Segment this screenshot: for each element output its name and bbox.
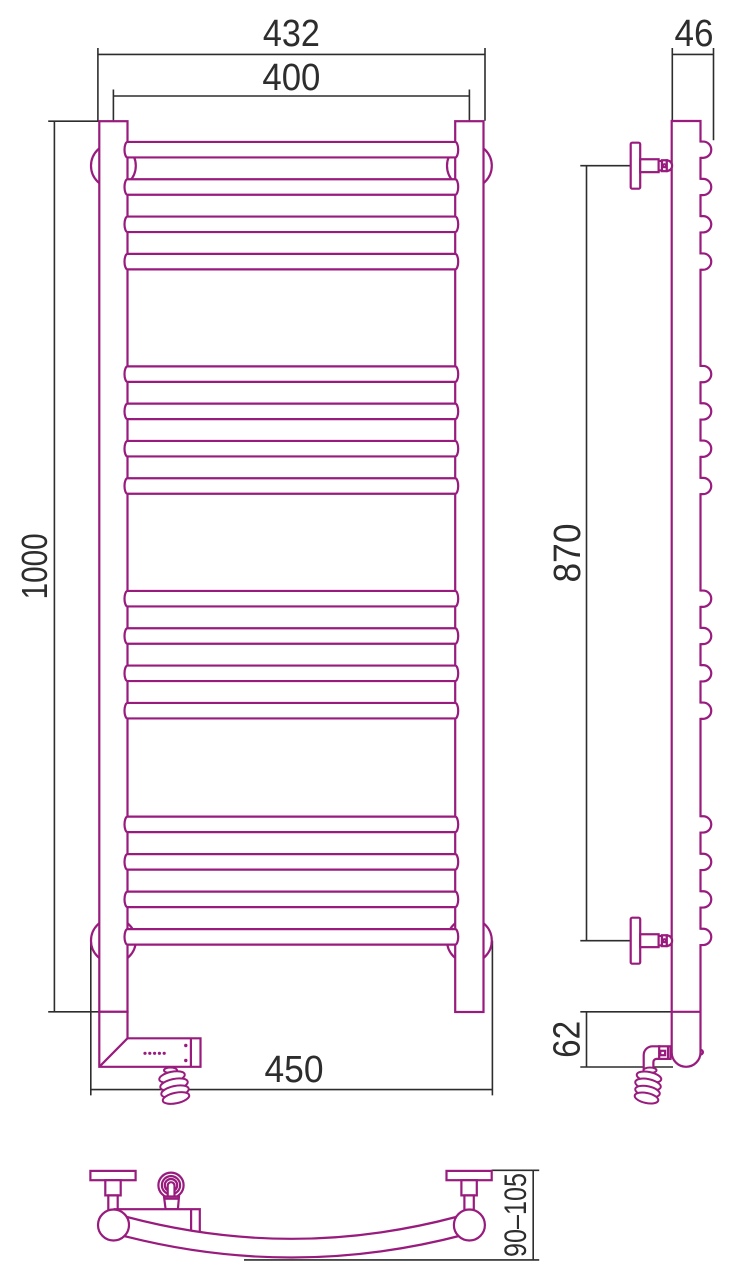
svg-text:870: 870 [547,524,589,583]
svg-text:400: 400 [262,57,320,99]
svg-text:432: 432 [263,13,320,55]
svg-text:46: 46 [675,13,714,55]
svg-text:62: 62 [547,1021,589,1058]
svg-text:450: 450 [265,1049,324,1091]
svg-text:90–105: 90–105 [497,1173,533,1257]
svg-text:1000: 1000 [14,533,55,599]
